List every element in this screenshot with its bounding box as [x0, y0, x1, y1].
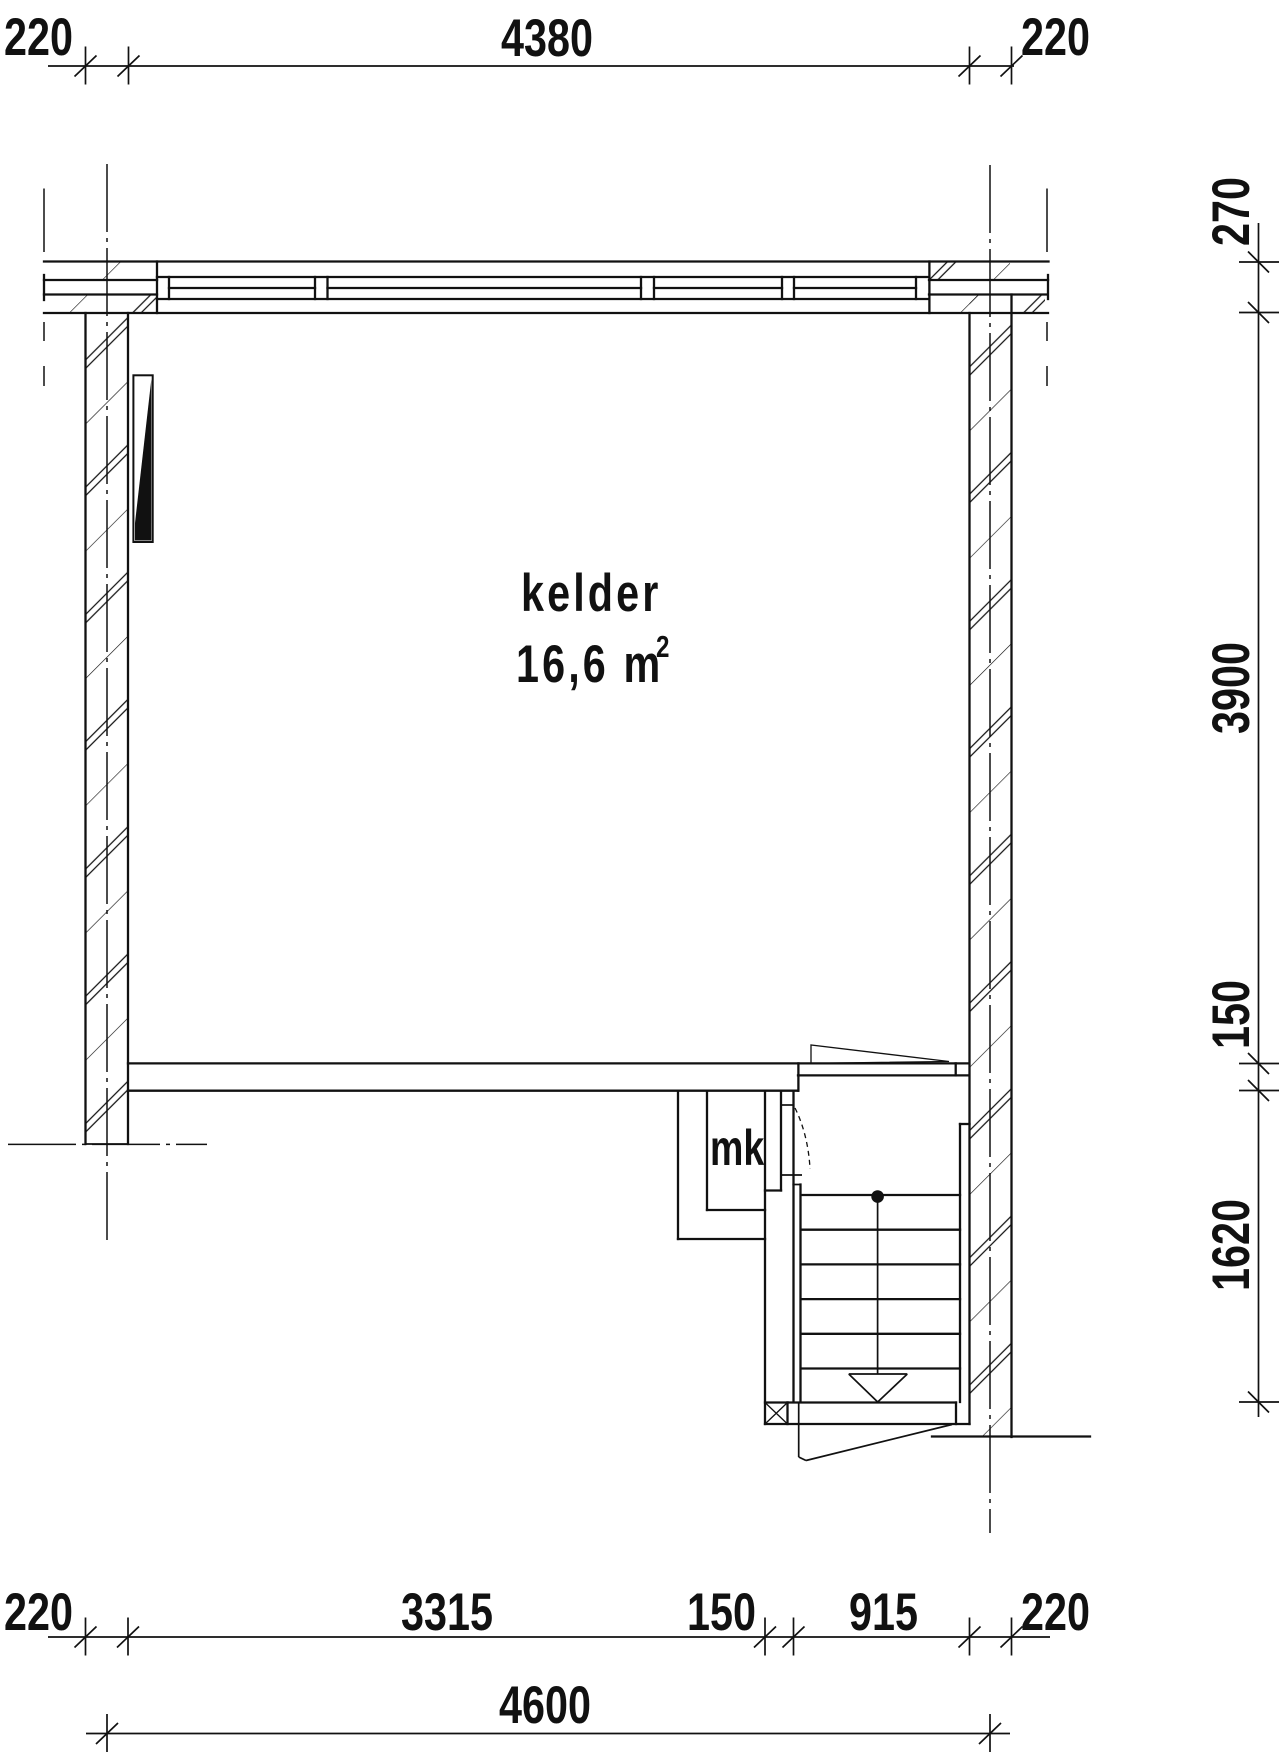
svg-text:2: 2 — [656, 629, 669, 664]
svg-text:220: 220 — [1021, 1583, 1090, 1642]
svg-text:4600: 4600 — [499, 1676, 591, 1735]
svg-text:kelder: kelder — [521, 564, 661, 623]
svg-text:915: 915 — [849, 1583, 918, 1642]
svg-text:3900: 3900 — [1202, 642, 1261, 734]
svg-text:150: 150 — [1202, 980, 1261, 1049]
svg-text:1620: 1620 — [1202, 1199, 1261, 1291]
svg-text:3315: 3315 — [401, 1583, 493, 1642]
svg-text:220: 220 — [4, 1583, 73, 1642]
svg-text:mk: mk — [710, 1121, 765, 1176]
svg-text:220: 220 — [1021, 8, 1090, 67]
svg-text:150: 150 — [687, 1583, 756, 1642]
svg-text:4380: 4380 — [501, 9, 593, 68]
svg-text:270: 270 — [1202, 177, 1261, 246]
svg-text:16,6 m: 16,6 m — [516, 635, 663, 694]
svg-text:220: 220 — [4, 8, 73, 67]
